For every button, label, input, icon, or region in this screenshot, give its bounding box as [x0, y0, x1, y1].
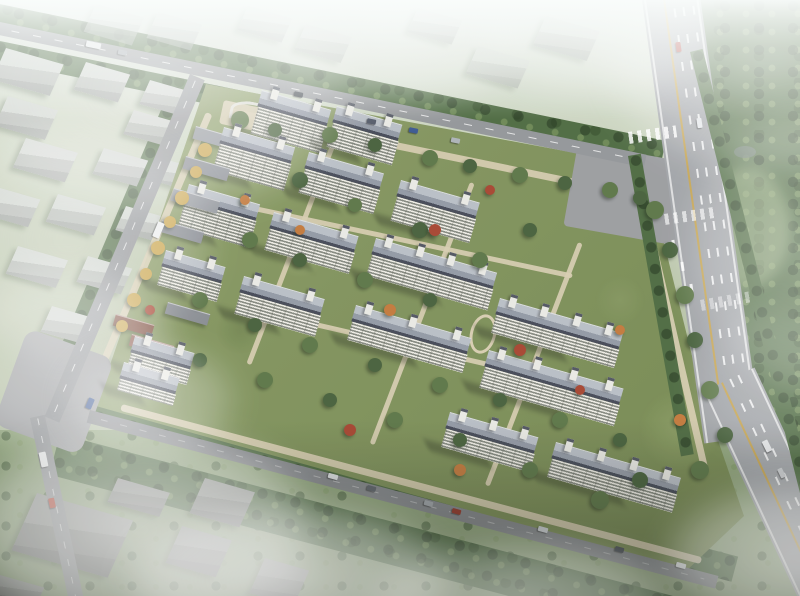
tree-yellow: [190, 166, 202, 178]
tree-red: [485, 185, 495, 195]
tree-dark: [248, 318, 262, 332]
tree-dark: [292, 172, 308, 188]
tree-dark: [412, 222, 428, 238]
vehicle: [538, 526, 549, 533]
tree-dark: [193, 353, 207, 367]
tree-dark: [633, 191, 647, 205]
tree-dark: [687, 332, 703, 348]
tree-mid: [242, 232, 258, 248]
tree-yellow: [198, 143, 212, 157]
tree-mid: [522, 462, 538, 478]
vehicle: [118, 49, 128, 56]
vehicle: [86, 41, 102, 50]
apartment-building: [346, 305, 471, 373]
tree-mid: [472, 252, 488, 268]
tree-mid: [691, 461, 709, 479]
tree-orange: [240, 195, 250, 205]
tree-mid: [552, 412, 568, 428]
tree-yellow: [164, 216, 176, 228]
tree-orange: [384, 304, 396, 316]
tree-mid: [676, 286, 694, 304]
vehicle: [85, 397, 95, 409]
tree-dark: [323, 393, 337, 407]
tree-orange: [454, 464, 466, 476]
apartment-building: [233, 276, 324, 337]
vehicle: [452, 508, 462, 515]
vehicle: [676, 562, 687, 569]
tree-dark: [613, 433, 627, 447]
tree-mid: [422, 150, 438, 166]
tree-dark: [558, 176, 572, 190]
apartment-building: [212, 127, 296, 191]
tree-mid: [432, 377, 448, 393]
vehicle: [675, 42, 681, 53]
vehicle: [762, 439, 773, 452]
tree-orange: [295, 225, 305, 235]
tree-orange: [615, 325, 625, 335]
tree-dark: [268, 123, 282, 137]
tree-mid: [512, 167, 528, 183]
tree-mid: [357, 272, 373, 288]
apartment-building: [263, 212, 358, 274]
tree-mid: [192, 292, 208, 308]
tree-mid: [257, 372, 273, 388]
tree-red: [429, 224, 441, 236]
tree-mid: [591, 491, 609, 509]
vehicle: [615, 546, 625, 553]
scene-objects-layer: [0, 0, 800, 596]
tree-dark: [453, 433, 467, 447]
aerial-rendering: [0, 0, 800, 596]
vehicle: [39, 451, 49, 467]
vehicle: [777, 467, 786, 478]
tree-red: [514, 344, 526, 356]
apartment-building: [156, 250, 226, 302]
tree-yellow: [175, 191, 189, 205]
tree-dark: [293, 253, 307, 267]
tree-yellow: [140, 268, 152, 280]
tree-orange: [674, 414, 686, 426]
tree-mid: [387, 412, 403, 428]
vehicle: [696, 118, 702, 129]
tree-red: [344, 424, 356, 436]
tree-dark: [493, 393, 507, 407]
tree-yellow: [127, 293, 141, 307]
tree-dark: [632, 472, 648, 488]
apartment-building: [546, 442, 681, 512]
tree-dark: [463, 159, 477, 173]
tree-red: [145, 305, 155, 315]
tree-mid: [602, 182, 618, 198]
tree-dark: [423, 293, 437, 307]
tree-yellow: [151, 241, 165, 255]
apartment-building: [297, 152, 384, 214]
tree-mid: [322, 127, 338, 143]
tree-dark: [368, 138, 382, 152]
tree-yellow: [116, 320, 128, 332]
vehicle: [409, 127, 419, 134]
tree-mid: [646, 201, 664, 219]
tree-mid: [348, 198, 362, 212]
tree-mid: [701, 381, 719, 399]
tree-dark: [368, 358, 382, 372]
apartment-building: [116, 362, 180, 406]
vehicle: [367, 485, 377, 492]
tree-mid: [302, 337, 318, 353]
tree-dark: [717, 427, 733, 443]
vehicle: [328, 473, 339, 480]
tree-red: [575, 385, 585, 395]
vehicle: [48, 497, 56, 508]
tree-dark: [523, 223, 537, 237]
vehicle: [451, 137, 461, 144]
tree-dark: [662, 242, 678, 258]
vehicle: [294, 91, 304, 98]
vehicle: [424, 500, 434, 507]
